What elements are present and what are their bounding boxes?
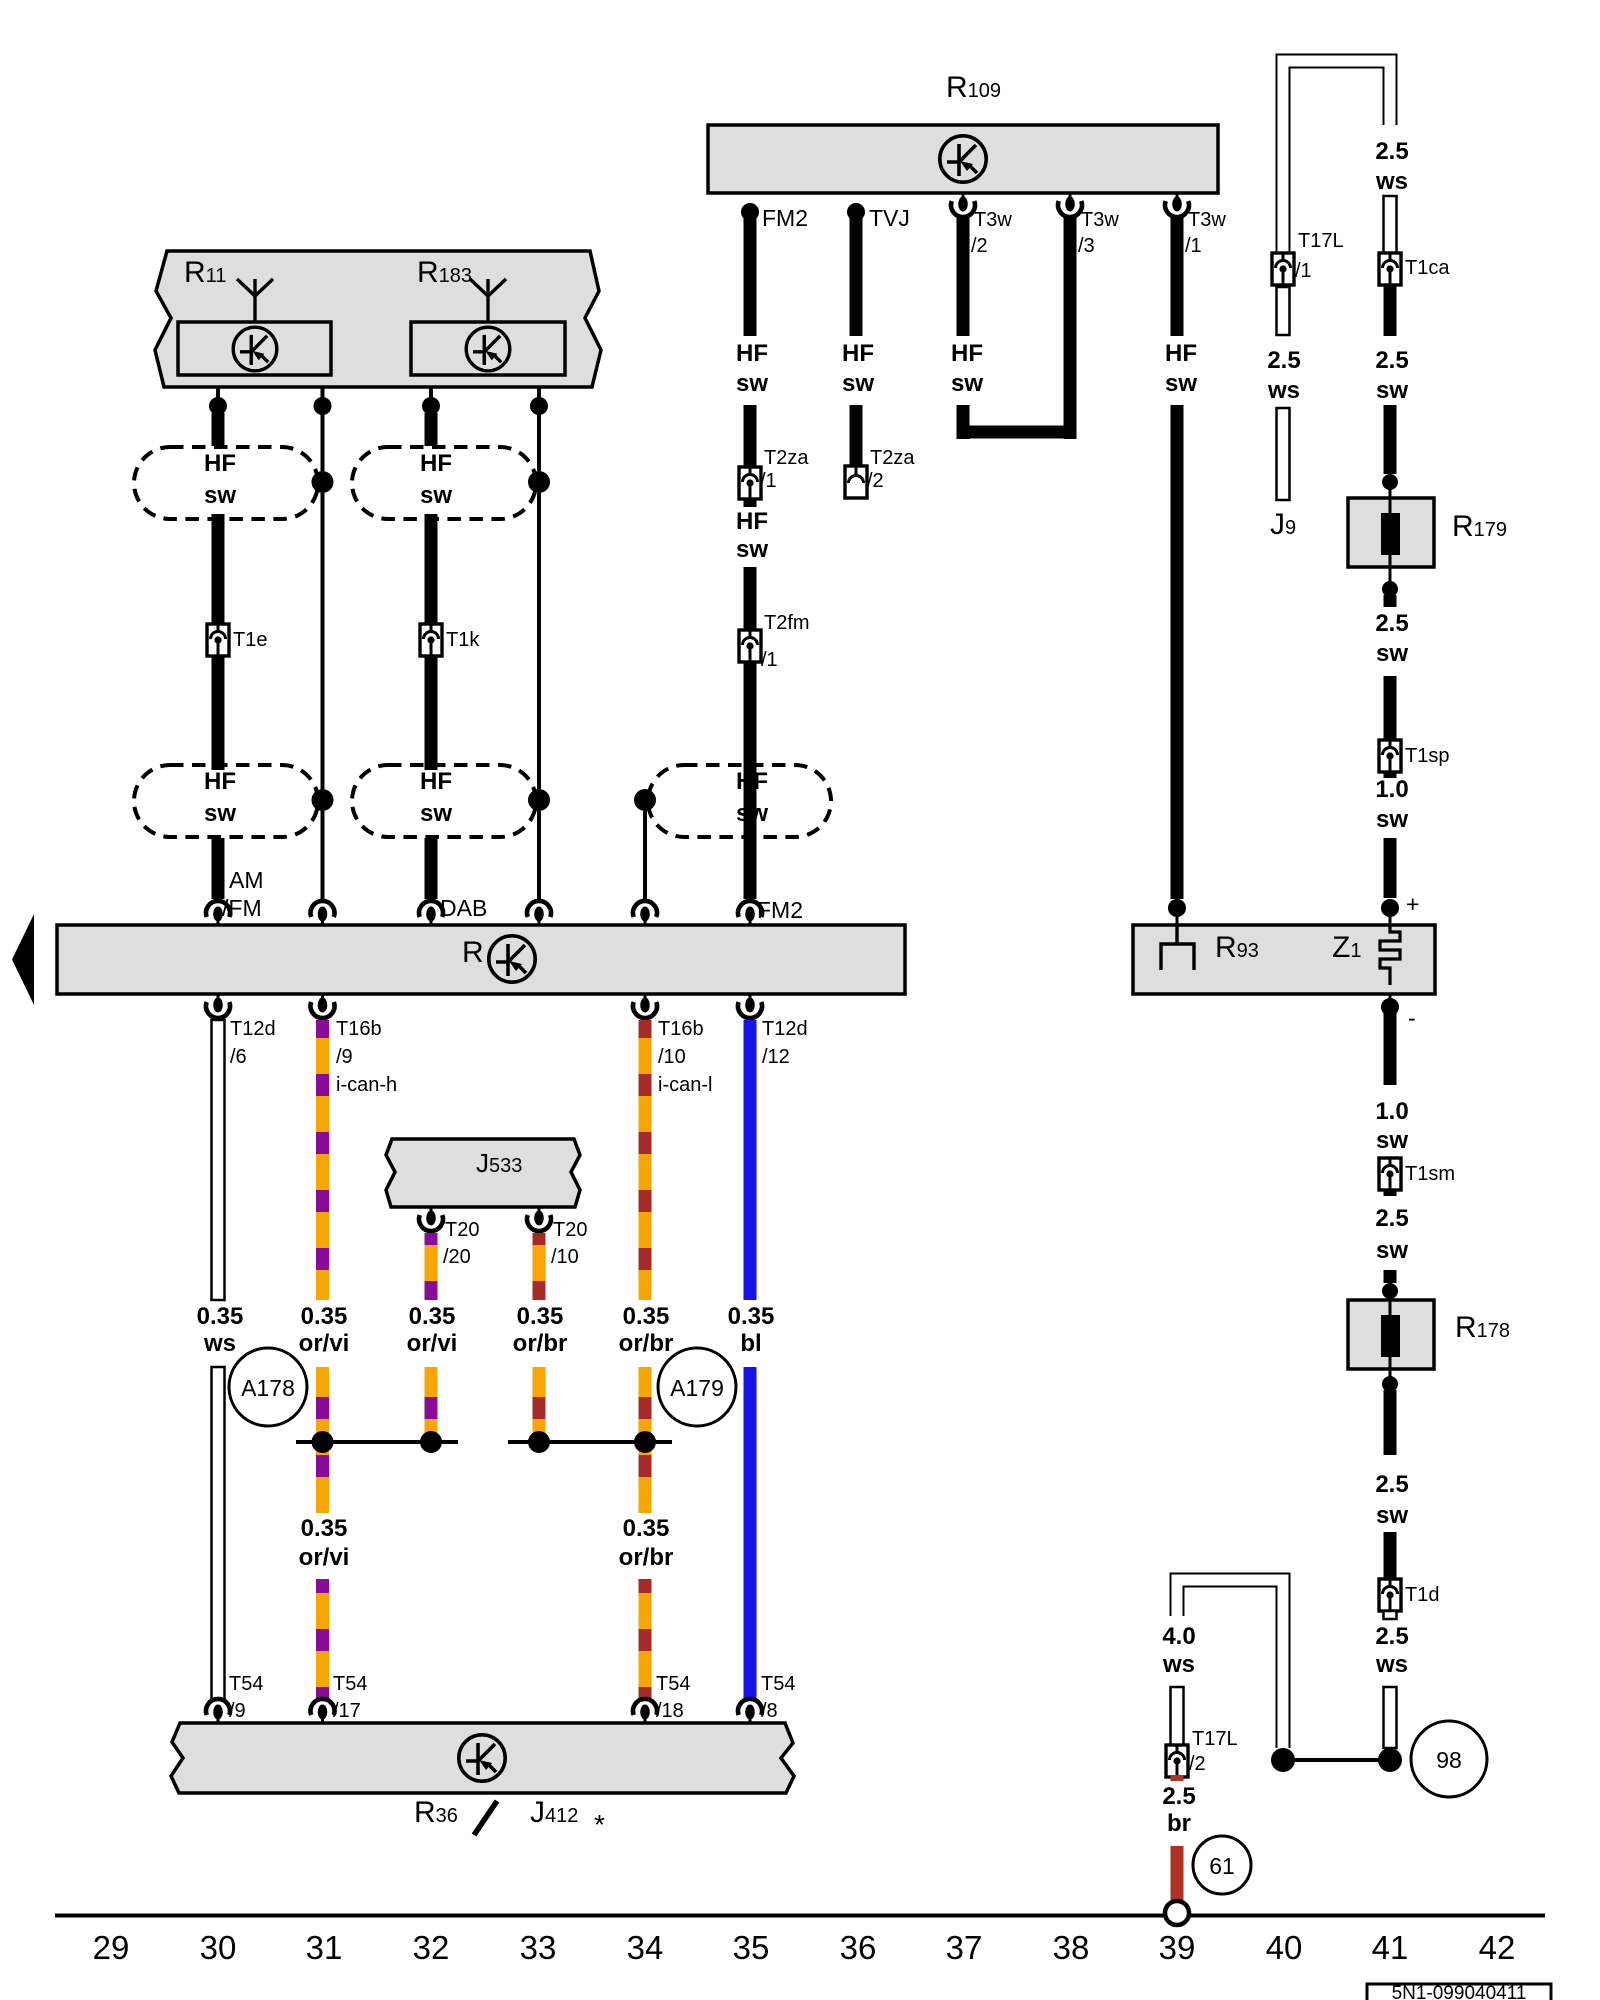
svg-text:T1k: T1k [446, 629, 480, 651]
svg-text:T1sm: T1sm [1405, 1163, 1455, 1185]
svg-text:/2: /2 [1189, 1753, 1206, 1775]
svg-text:39: 39 [1159, 1929, 1196, 1966]
svg-text:HF: HF [420, 768, 452, 795]
svg-text:A178: A178 [241, 1375, 295, 1401]
svg-text:T2za: T2za [870, 447, 915, 469]
svg-text:0.35: 0.35 [301, 1303, 348, 1330]
svg-text:sw: sw [1376, 640, 1408, 667]
svg-text:0.35: 0.35 [728, 1303, 775, 1330]
svg-text:36: 36 [840, 1929, 877, 1966]
svg-text:sw: sw [1376, 1237, 1408, 1264]
svg-text:T3w: T3w [974, 209, 1012, 231]
svg-text:*: * [594, 1809, 605, 1840]
svg-text:HF: HF [842, 340, 874, 367]
svg-text:HF: HF [951, 340, 983, 367]
svg-text:sw: sw [736, 800, 768, 827]
svg-text:T54: T54 [229, 1673, 263, 1695]
svg-text:sw: sw [736, 536, 768, 563]
svg-text:sw: sw [1376, 377, 1408, 404]
svg-text:2.5: 2.5 [1375, 1623, 1408, 1650]
svg-text:38: 38 [1053, 1929, 1090, 1966]
svg-text:or/vi: or/vi [299, 1544, 350, 1571]
svg-text:sw: sw [1376, 1127, 1408, 1154]
svg-text:98: 98 [1436, 1747, 1462, 1773]
svg-text:-: - [1408, 1005, 1416, 1031]
svg-text:/17: /17 [333, 1700, 361, 1722]
svg-text:T20: T20 [553, 1219, 587, 1241]
svg-text:ws: ws [1162, 1651, 1195, 1678]
svg-text:2.5: 2.5 [1375, 610, 1408, 637]
svg-text:i-can-h: i-can-h [336, 1074, 397, 1096]
svg-text:41: 41 [1372, 1929, 1409, 1966]
svg-text:or/vi: or/vi [407, 1330, 458, 1357]
svg-text:/10: /10 [658, 1046, 686, 1068]
svg-text:DAB: DAB [440, 895, 487, 921]
svg-text:2.5: 2.5 [1375, 138, 1408, 165]
svg-text:T54: T54 [656, 1673, 690, 1695]
svg-text:T17L: T17L [1298, 230, 1344, 252]
svg-text:sw: sw [1376, 806, 1408, 833]
svg-text:T1d: T1d [1405, 1584, 1439, 1606]
svg-text:sw: sw [736, 370, 768, 397]
svg-text:/2: /2 [971, 235, 988, 257]
svg-text:0.35: 0.35 [197, 1303, 244, 1330]
svg-text:sw: sw [420, 800, 452, 827]
svg-text:sw: sw [204, 482, 236, 509]
svg-text:T12d: T12d [230, 1018, 276, 1040]
svg-text:30: 30 [200, 1929, 237, 1966]
svg-text:br: br [1167, 1810, 1191, 1837]
svg-text:sw: sw [1376, 1502, 1408, 1529]
svg-text:2.5: 2.5 [1375, 1471, 1408, 1498]
svg-text:sw: sw [1165, 370, 1197, 397]
svg-text:sw: sw [420, 482, 452, 509]
svg-text:1.0: 1.0 [1375, 776, 1408, 803]
svg-text:33: 33 [520, 1929, 557, 1966]
svg-text:/10: /10 [551, 1246, 579, 1268]
svg-text:T16b: T16b [658, 1018, 704, 1040]
svg-text:T3w: T3w [1188, 209, 1226, 231]
svg-text:1.0: 1.0 [1375, 1098, 1408, 1125]
svg-text:2.5: 2.5 [1162, 1783, 1195, 1810]
svg-text:2.5: 2.5 [1267, 347, 1300, 374]
svg-text:/18: /18 [656, 1700, 684, 1722]
svg-text:2.5: 2.5 [1375, 347, 1408, 374]
svg-text:/1: /1 [1185, 235, 1202, 257]
svg-text:T2za: T2za [764, 447, 809, 469]
svg-text:sw: sw [204, 800, 236, 827]
svg-text:/20: /20 [443, 1246, 471, 1268]
svg-text:2.5: 2.5 [1375, 1205, 1408, 1232]
svg-text:or/br: or/br [513, 1330, 568, 1357]
svg-text:/1: /1 [761, 649, 778, 671]
svg-text:61: 61 [1209, 1853, 1235, 1879]
svg-text:R: R [462, 936, 484, 969]
svg-text:37: 37 [946, 1929, 983, 1966]
svg-text:T1ca: T1ca [1405, 257, 1450, 279]
svg-text:/FM: /FM [222, 895, 262, 921]
svg-text:ws: ws [1375, 168, 1408, 195]
svg-text:/1: /1 [1295, 260, 1312, 282]
svg-text:0.35: 0.35 [517, 1303, 564, 1330]
svg-text:31: 31 [306, 1929, 343, 1966]
svg-text:T20: T20 [445, 1219, 479, 1241]
svg-text:sw: sw [951, 370, 983, 397]
svg-text:40: 40 [1266, 1929, 1303, 1966]
svg-text:sw: sw [842, 370, 874, 397]
svg-text:34: 34 [627, 1929, 664, 1966]
svg-text:T1sp: T1sp [1405, 745, 1449, 767]
svg-text:T16b: T16b [336, 1018, 382, 1040]
svg-text:/6: /6 [230, 1046, 247, 1068]
svg-text:T12d: T12d [762, 1018, 808, 1040]
svg-text:T54: T54 [761, 1673, 795, 1695]
svg-text:or/br: or/br [619, 1544, 674, 1571]
svg-text:HF: HF [420, 450, 452, 477]
svg-text:bl: bl [740, 1330, 761, 1357]
svg-text:A179: A179 [670, 1375, 724, 1401]
svg-text:FM2: FM2 [762, 205, 808, 231]
svg-text:ws: ws [1267, 377, 1300, 404]
svg-text:/12: /12 [762, 1046, 790, 1068]
svg-text:i-can-l: i-can-l [658, 1074, 712, 1096]
svg-text:0.35: 0.35 [623, 1515, 670, 1542]
svg-text:0.35: 0.35 [623, 1303, 670, 1330]
svg-text:4.0: 4.0 [1162, 1623, 1195, 1650]
svg-text:or/br: or/br [619, 1330, 674, 1357]
svg-text:FM2: FM2 [757, 897, 803, 923]
svg-text:42: 42 [1479, 1929, 1516, 1966]
svg-text:5N1-099040411: 5N1-099040411 [1392, 1983, 1527, 2000]
svg-text:/2: /2 [867, 470, 884, 492]
svg-text:T2fm: T2fm [764, 612, 810, 634]
svg-text:AM: AM [229, 867, 264, 893]
svg-text:TVJ: TVJ [869, 205, 910, 231]
svg-text:HF: HF [1165, 340, 1197, 367]
svg-text:or/vi: or/vi [299, 1330, 350, 1357]
svg-text:T54: T54 [333, 1673, 367, 1695]
svg-text:/1: /1 [760, 470, 777, 492]
svg-text:0.35: 0.35 [301, 1515, 348, 1542]
svg-text:/9: /9 [336, 1046, 353, 1068]
svg-text:32: 32 [413, 1929, 450, 1966]
svg-text:HF: HF [204, 450, 236, 477]
svg-text:T3w: T3w [1081, 209, 1119, 231]
svg-text:T17L: T17L [1192, 1728, 1238, 1750]
svg-text:0.35: 0.35 [409, 1303, 456, 1330]
svg-text:HF: HF [204, 768, 236, 795]
svg-text:29: 29 [93, 1929, 130, 1966]
svg-text:ws: ws [1375, 1651, 1408, 1678]
svg-text:HF: HF [736, 340, 768, 367]
svg-text:ws: ws [203, 1330, 236, 1357]
svg-text:+: + [1406, 891, 1419, 917]
svg-text:HF: HF [736, 508, 768, 535]
svg-text:35: 35 [733, 1929, 770, 1966]
svg-text:T1e: T1e [233, 629, 267, 651]
svg-text:HF: HF [736, 768, 768, 795]
svg-text:/3: /3 [1078, 235, 1095, 257]
